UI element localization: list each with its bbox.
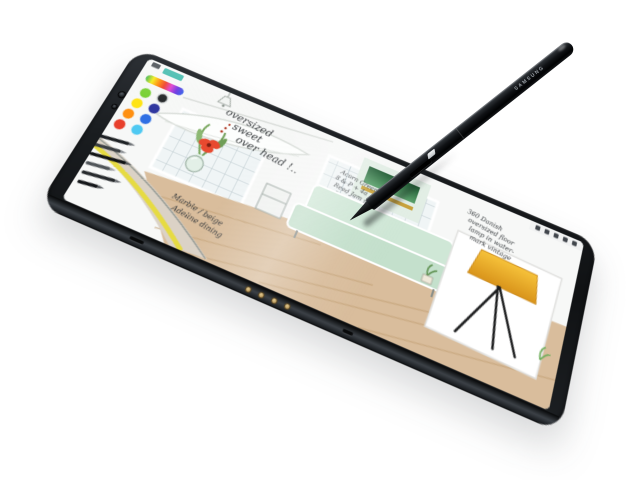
- samsung-logo-text: SAMSUNG: [511, 61, 549, 95]
- stylus-barrel: SAMSUNG: [365, 40, 576, 211]
- stylus-seam: [456, 128, 464, 138]
- mic-slot: [342, 329, 353, 336]
- pogo-pin: [270, 296, 279, 305]
- speaker-slot: [129, 236, 144, 244]
- pogo-pin: [257, 291, 266, 300]
- product-photo-scene: oversized sweet over head !.. Acorn Gree…: [0, 0, 640, 480]
- pogo-pin: [283, 302, 292, 311]
- stylus-cap-highlight: [557, 43, 567, 52]
- stylus-clip: [427, 148, 435, 159]
- pogo-pin: [244, 285, 253, 294]
- tablet-body: oversized sweet over head !.. Acorn Gree…: [38, 48, 598, 433]
